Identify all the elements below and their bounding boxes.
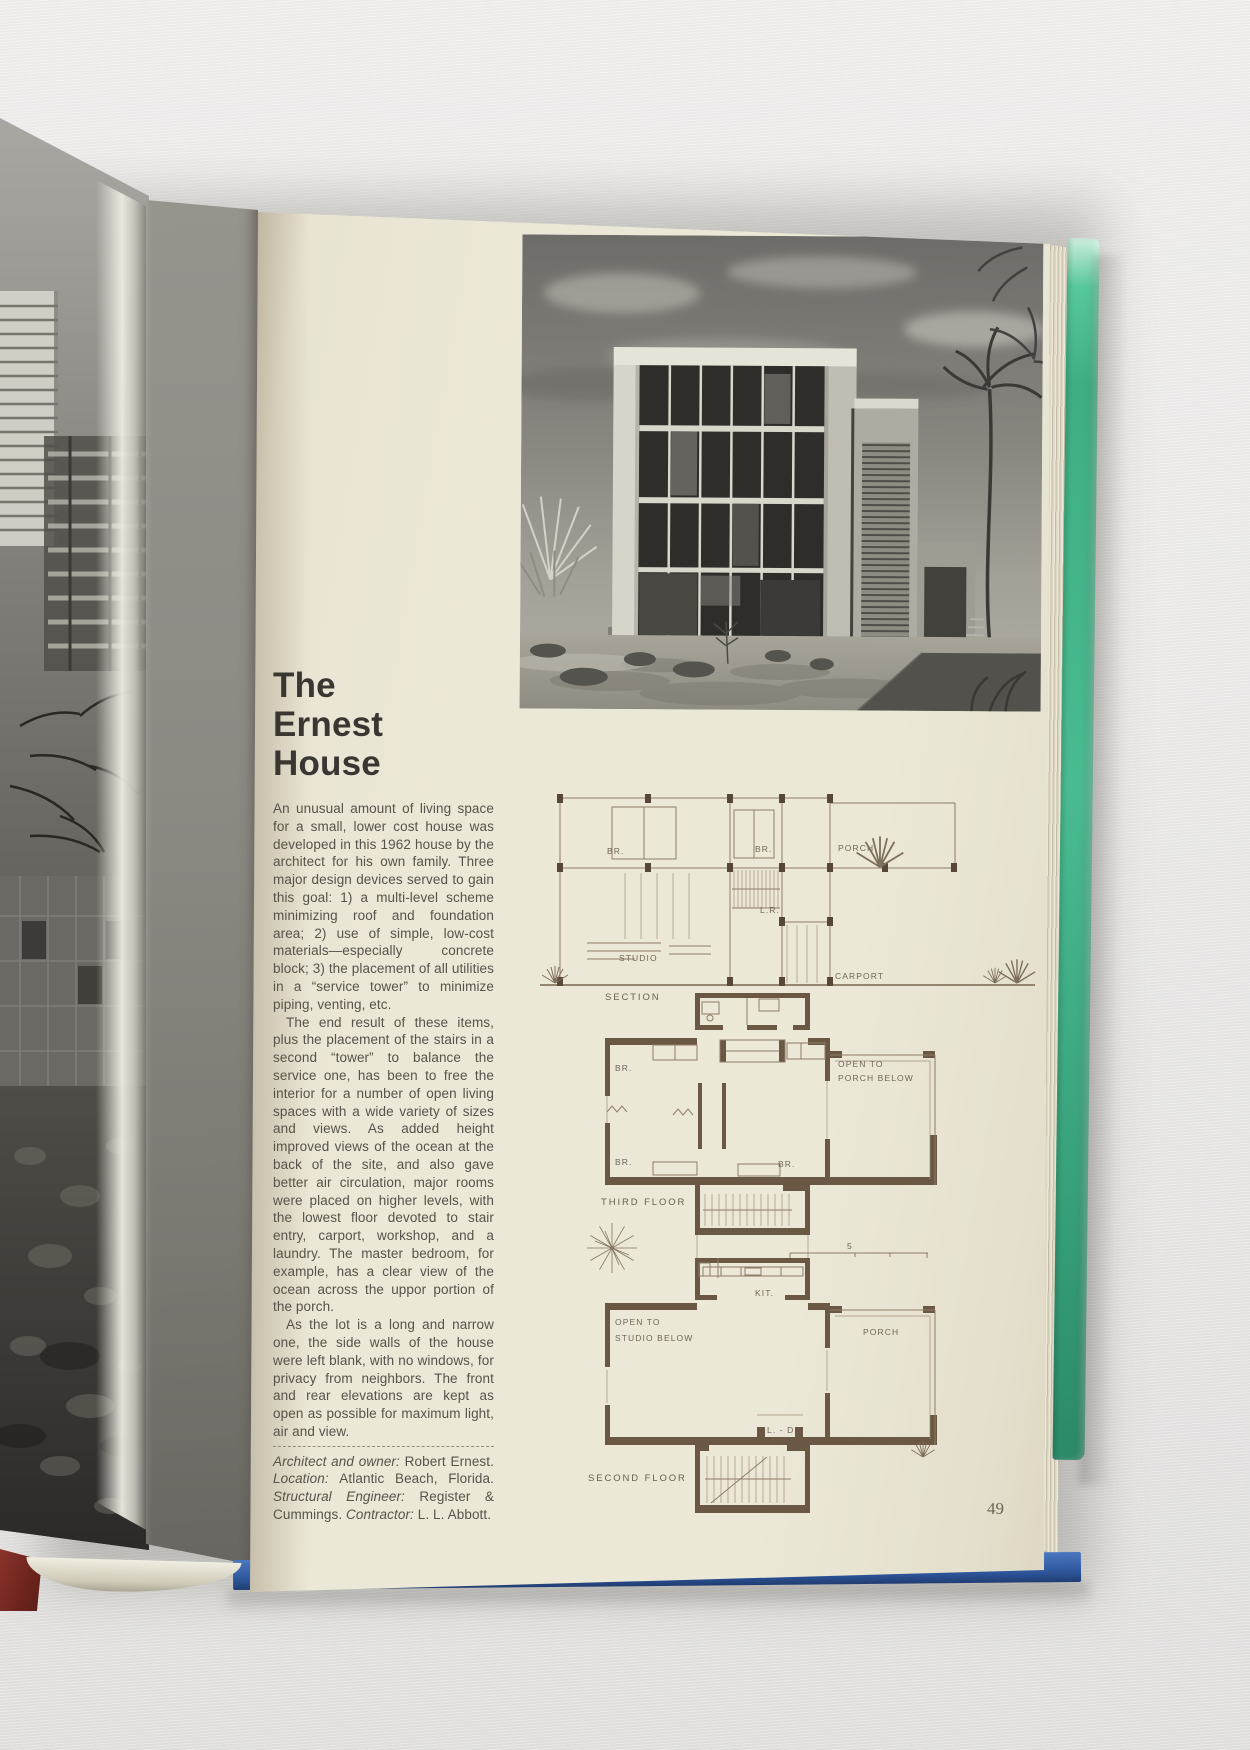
label-br-mid: BR. [755, 844, 772, 854]
service-tower [854, 398, 918, 408]
structural-piers [557, 794, 957, 986]
paragraph-2: The end result of these items, plus the … [273, 1014, 494, 1317]
label-porch-below: PORCH BELOW [838, 1073, 914, 1083]
architectural-drawings: BR. BR. PORCH L.R. STUDIO CARPORT SECTIO… [535, 715, 1047, 1527]
paragraph-1: An unusual amount of living space for a … [273, 800, 494, 1014]
title-line-3: House [273, 744, 505, 783]
scale-number: 5 [847, 1241, 853, 1251]
article-title: The Ernest House [273, 666, 505, 783]
label-porch-2: PORCH [863, 1327, 899, 1337]
section-drawing: BR. BR. PORCH L.R. STUDIO CARPORT SECTIO… [540, 794, 1035, 1003]
label-br-top: BR. [615, 1063, 632, 1073]
plans-art: BR. BR. PORCH L.R. STUDIO CARPORT SECTIO… [535, 715, 1047, 1527]
label-studio-below: STUDIO BELOW [615, 1333, 693, 1343]
credit-value: Robert Ernest. [405, 1454, 494, 1469]
credit-label: Architect and owner: [273, 1454, 405, 1469]
house-photograph [520, 234, 1044, 711]
page-number: 49 [987, 1499, 1004, 1518]
title-line-2: Ernest [273, 705, 505, 744]
window-zigzag-marks [607, 1106, 693, 1115]
house-photo-art [520, 234, 1044, 711]
credits: Architect and owner: Robert Ernest. Loca… [273, 1453, 494, 1524]
label-open-to: OPEN TO [838, 1059, 884, 1069]
second-floor-plan: KIT. OPEN TO STUDIO BELOW PORCH L. - D. … [588, 1258, 937, 1513]
credit-label: Structural Engineer: [273, 1489, 419, 1504]
credit-label: Contractor: [346, 1507, 418, 1522]
label-lr: L.R. [760, 905, 780, 915]
second-floor-caption: SECOND FLOOR [588, 1473, 687, 1484]
scale-bar: 5 [790, 1241, 928, 1258]
credit-label: Location: [273, 1471, 339, 1486]
plant-sketch [999, 959, 1035, 983]
label-carport: CARPORT [835, 971, 884, 981]
third-floor-plan: BR. OPEN TO PORCH BELOW BR. BR. THIRD FL… [601, 993, 937, 1258]
section-caption: SECTION [605, 992, 661, 1003]
book-gutter [146, 194, 258, 1569]
label-br-bottom-mid: BR. [778, 1159, 795, 1169]
label-open-to-2: OPEN TO [615, 1317, 661, 1327]
dashed-divider [273, 1446, 494, 1447]
third-floor-caption: THIRD FLOOR [601, 1197, 686, 1208]
label-br-left: BR. [607, 846, 624, 856]
label-studio: STUDIO [619, 953, 658, 963]
label-ld: L. - D. [767, 1425, 798, 1435]
label-br-bottom-left: BR. [615, 1157, 632, 1167]
plant-sketch [983, 968, 1006, 983]
right-page: The Ernest House An unusual amount of li… [250, 202, 1050, 1594]
label-porch: PORCH [838, 843, 874, 853]
body-text-column: An unusual amount of living space for a … [273, 800, 494, 1524]
dandelion-plant [587, 1223, 637, 1273]
paragraph-3: As the lot is a long and narrow one, the… [273, 1316, 494, 1441]
credit-value: Atlantic Beach, Florida. [339, 1471, 494, 1486]
page-curl-highlight [96, 150, 150, 1540]
label-kit: KIT. [755, 1288, 774, 1298]
credit-value: L. L. Abbott. [418, 1507, 491, 1522]
title-line-1: The [273, 666, 505, 705]
plant-sketch [542, 966, 568, 983]
